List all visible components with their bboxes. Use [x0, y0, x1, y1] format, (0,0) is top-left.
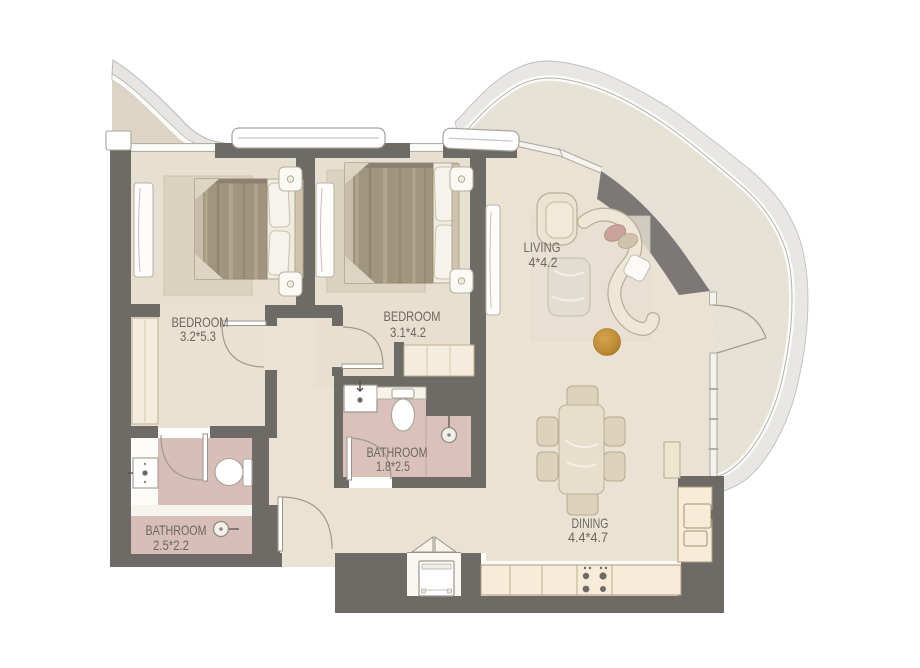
svg-text:DINING: DINING	[572, 515, 609, 531]
svg-text:BATHROOM: BATHROOM	[146, 522, 207, 538]
svg-text:1.8*2.5: 1.8*2.5	[376, 459, 410, 474]
svg-text:3.1*4.2: 3.1*4.2	[390, 325, 426, 340]
svg-text:3.2*5.3: 3.2*5.3	[180, 329, 216, 344]
svg-text:BEDROOM: BEDROOM	[384, 308, 441, 324]
svg-text:4*4.2: 4*4.2	[529, 255, 558, 270]
svg-text:BATHROOM: BATHROOM	[367, 444, 428, 460]
svg-text:4.4*4.7: 4.4*4.7	[568, 530, 608, 545]
svg-text:2.5*2.2: 2.5*2.2	[153, 538, 189, 553]
svg-text:BEDROOM: BEDROOM	[172, 314, 229, 330]
svg-text:LIVING: LIVING	[524, 239, 561, 255]
